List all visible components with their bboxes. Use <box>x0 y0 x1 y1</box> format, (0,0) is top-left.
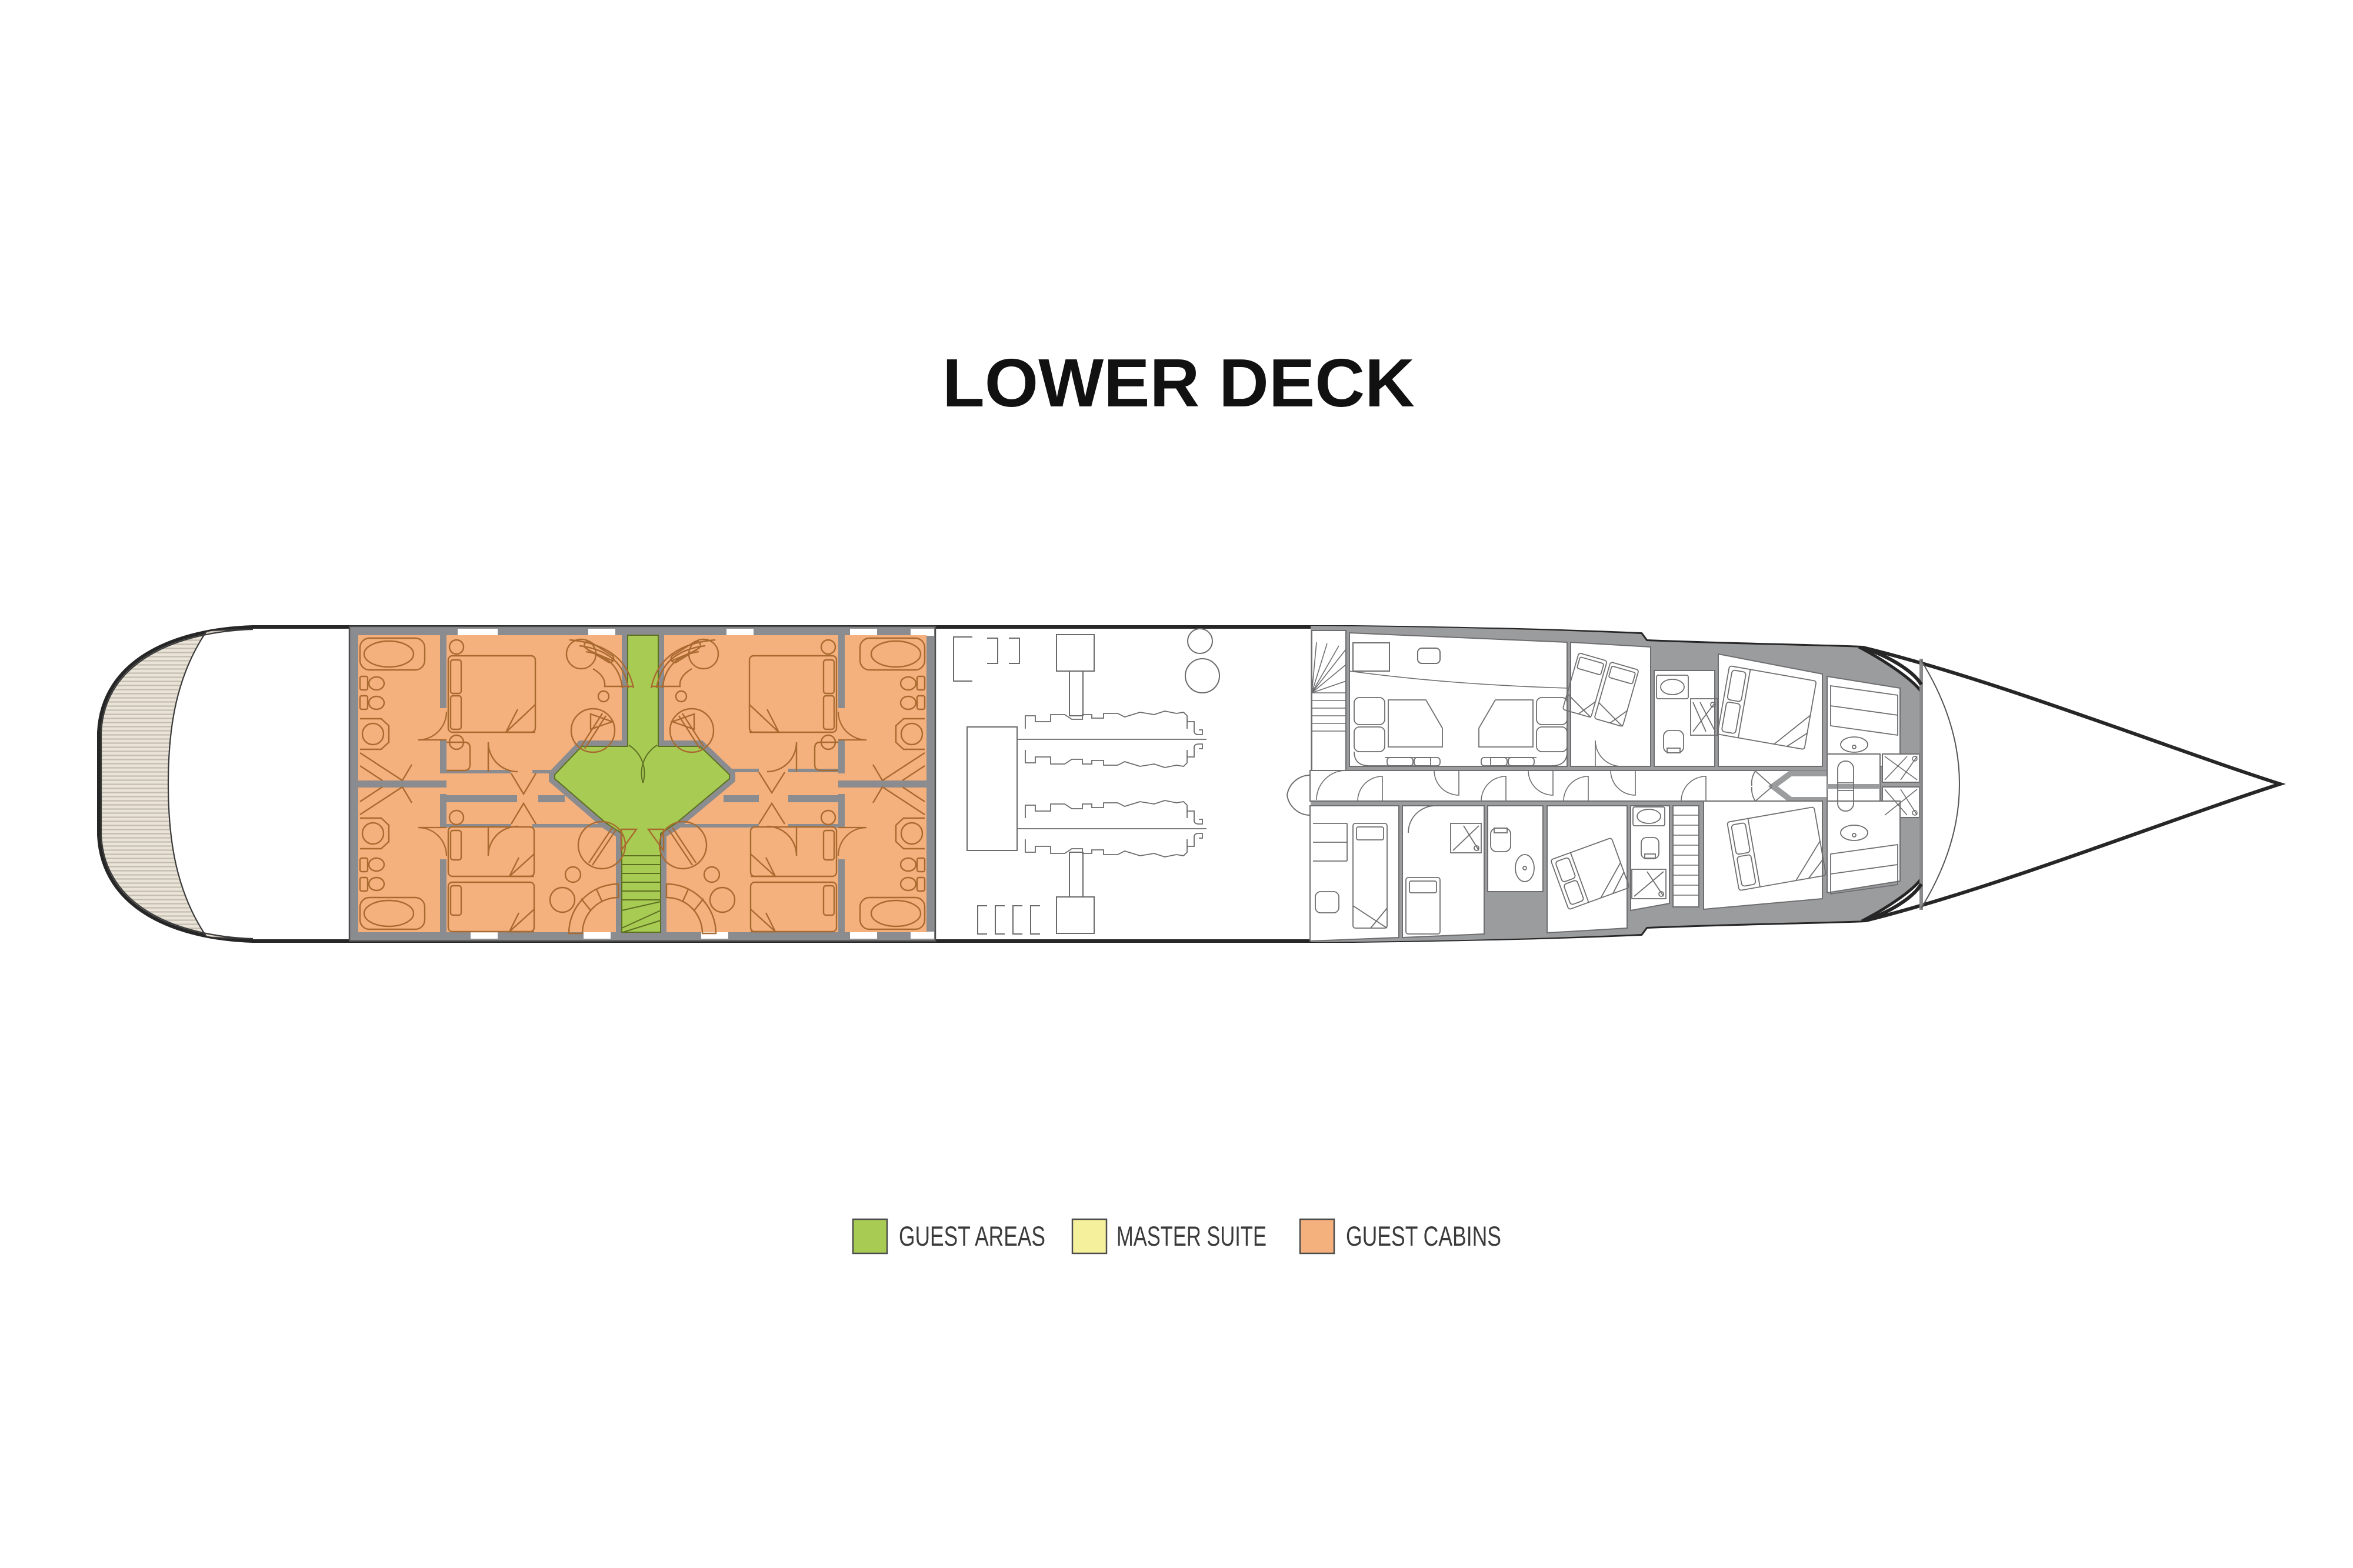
svg-text:GUEST CABINS: GUEST CABINS <box>1346 1220 1501 1252</box>
svg-text:MASTER SUITE: MASTER SUITE <box>1116 1220 1267 1252</box>
svg-text:GUEST AREAS: GUEST AREAS <box>899 1220 1045 1252</box>
svg-text:LOWER DECK: LOWER DECK <box>942 345 1415 421</box>
